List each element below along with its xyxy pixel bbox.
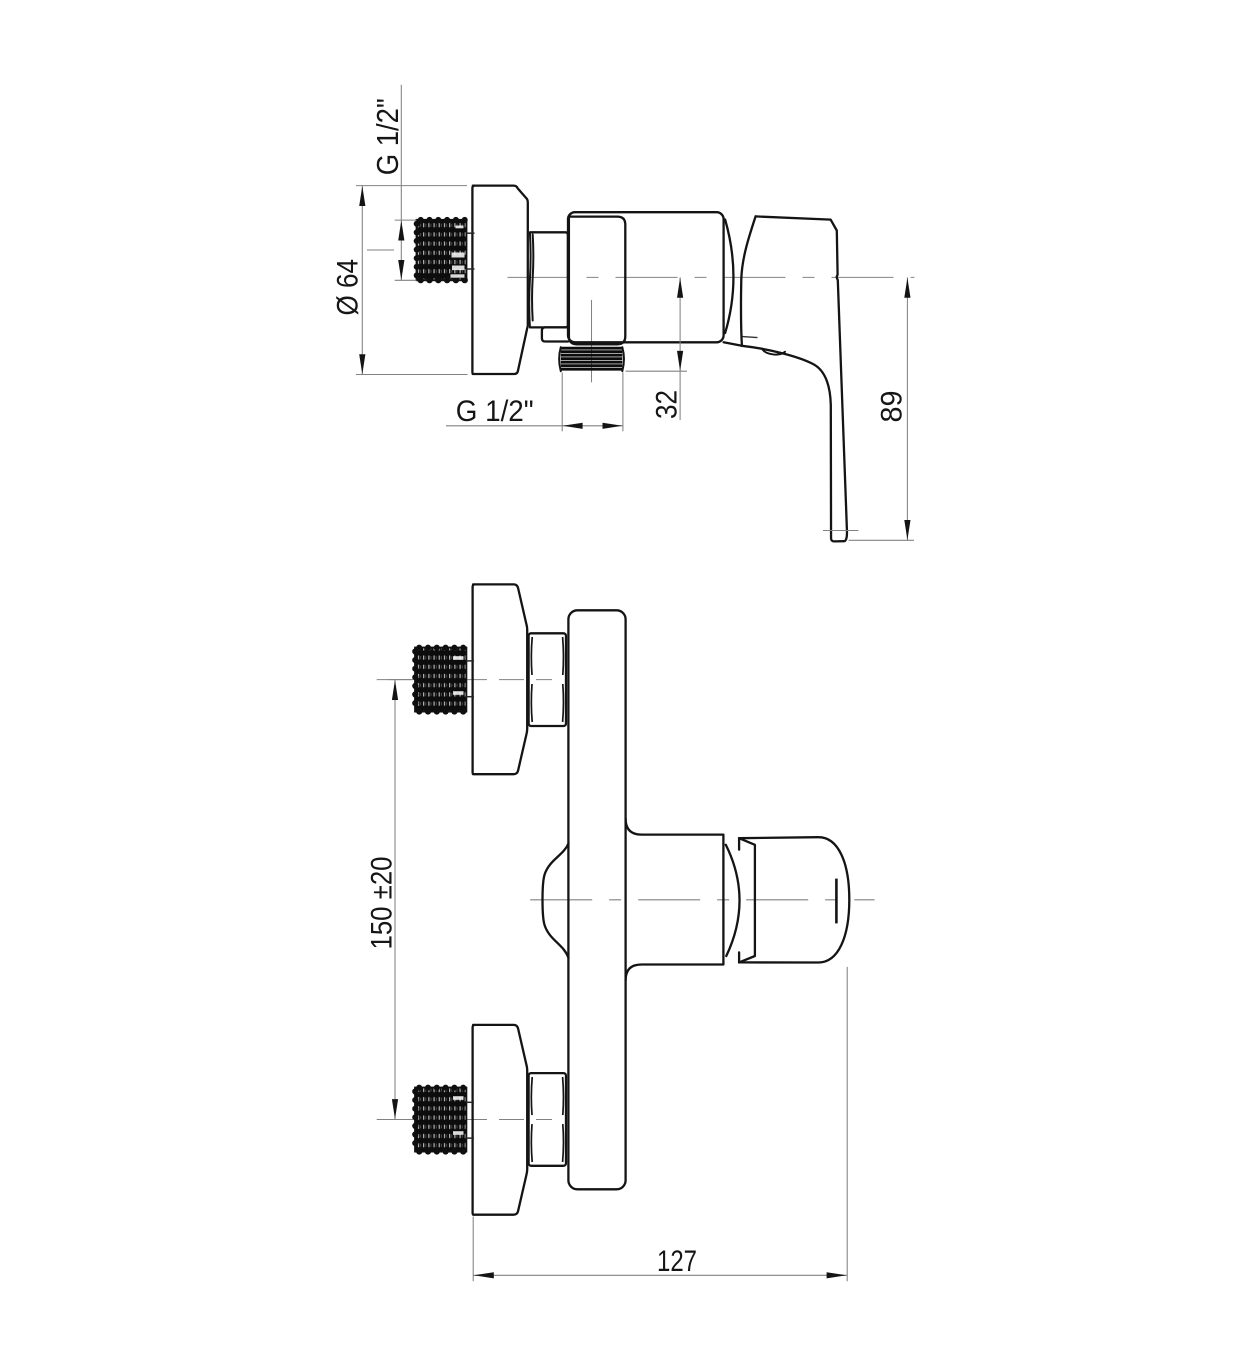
- svg-text:127: 127: [657, 1245, 697, 1278]
- svg-text:89: 89: [876, 391, 909, 423]
- svg-text:Ø 64: Ø 64: [332, 259, 365, 316]
- svg-text:G 1/2": G 1/2": [370, 98, 405, 175]
- svg-text:32: 32: [651, 390, 684, 419]
- svg-text:G 1/2": G 1/2": [456, 395, 534, 428]
- svg-text:150 ±20: 150 ±20: [366, 857, 399, 950]
